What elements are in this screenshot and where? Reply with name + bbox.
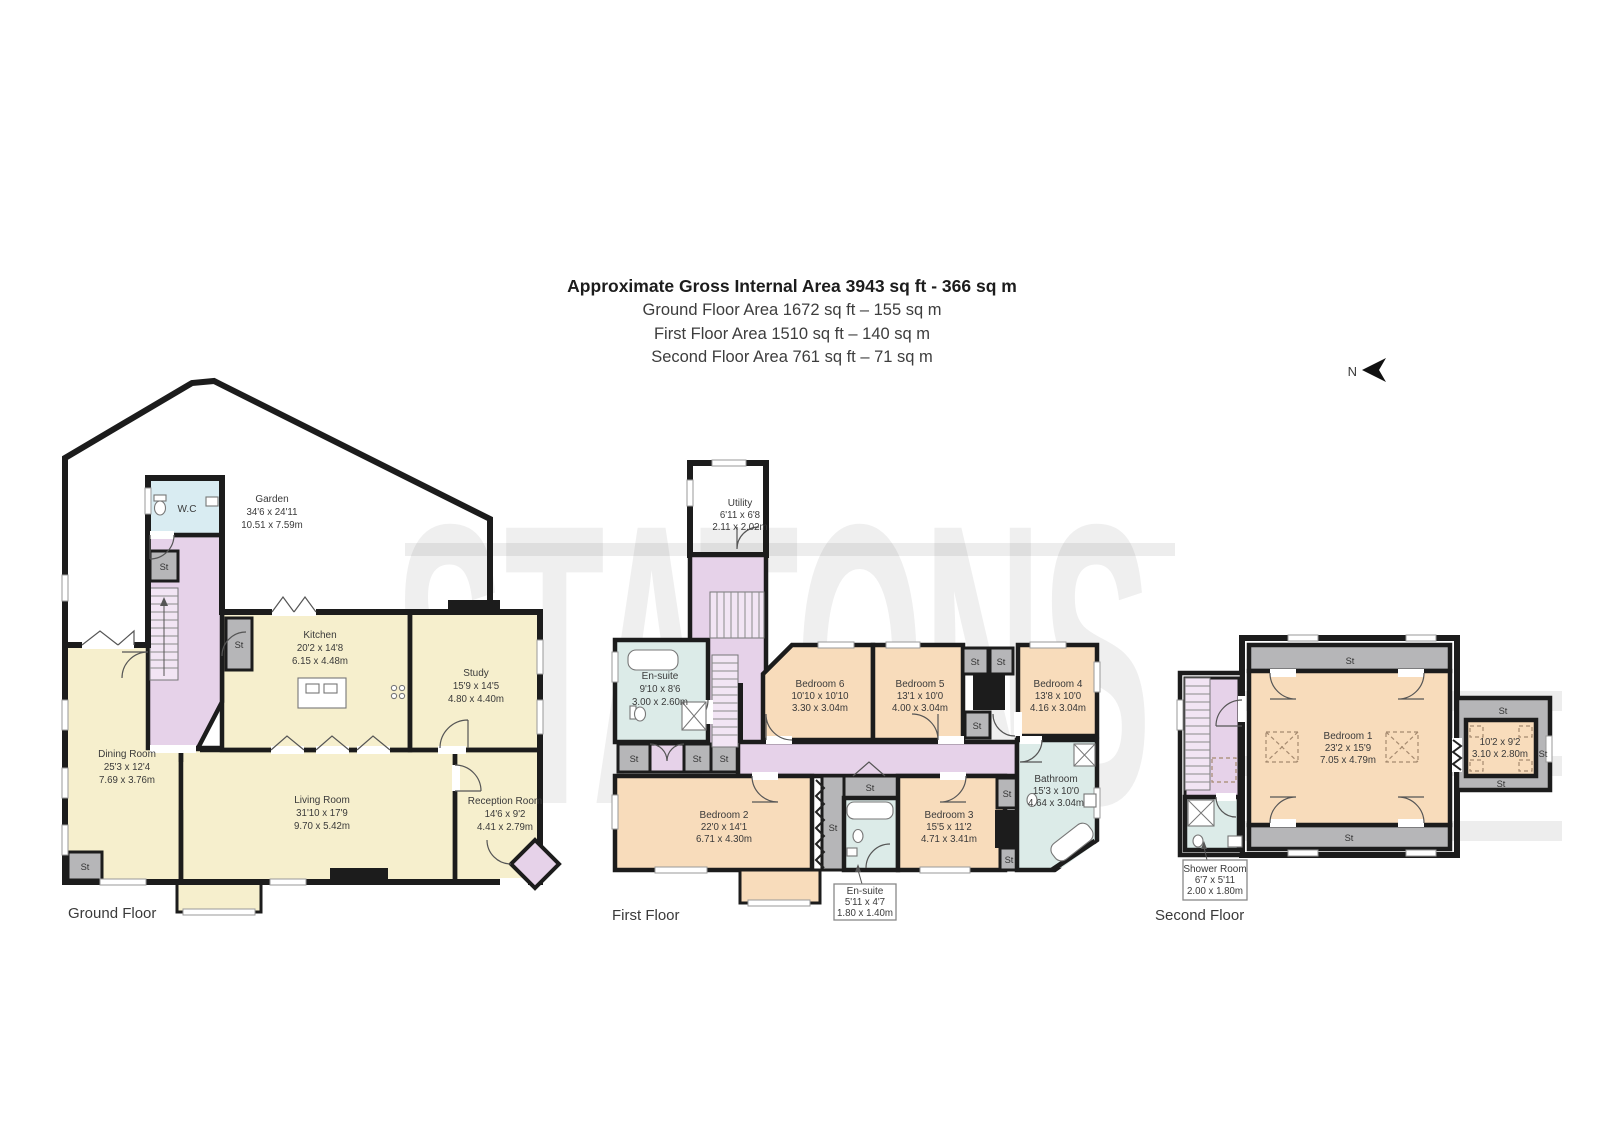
room-utility-m: 2.11 x 2.02m	[712, 522, 767, 533]
room-eaves-m: 3.10 x 2.80m	[1472, 749, 1528, 760]
room-reception-ft: 14'6 x 9'2	[485, 809, 526, 820]
room-bedroom5-name: Bedroom 5	[896, 679, 945, 690]
room-garden-ft: 34'6 x 24'11	[247, 507, 298, 518]
room-eaves	[1466, 720, 1536, 776]
room-bedroom6-ft: 10'10 x 10'10	[791, 691, 849, 702]
room-reception-name: Reception Room	[468, 796, 542, 807]
room-shower-name: Shower Room	[1183, 864, 1246, 875]
room-bedroom2-ft: 22'0 x 14'1	[701, 822, 747, 833]
room-bedroom5-m: 4.00 x 3.04m	[892, 703, 948, 714]
room-ensuite-name: En-suite	[642, 671, 679, 682]
ensuite-callout: En-suite 5'11 x 4'7 1.80 x 1.40m	[834, 864, 896, 920]
st-label: St	[235, 640, 244, 650]
room-study-name: Study	[463, 668, 489, 679]
room-bedroom1-name: Bedroom 1	[1324, 731, 1373, 742]
st-label: St	[720, 754, 729, 764]
second-floor-plan: Shower Room 6'7 x 5'11 2.00 x 1.80m Bedr…	[1177, 635, 1552, 900]
room-study-ft: 15'9 x 14'5	[453, 681, 499, 692]
room-bedroom3-ft: 15'5 x 11'2	[926, 822, 972, 833]
north-label: N	[1348, 364, 1357, 379]
st-label: St	[1003, 789, 1012, 799]
st-label: St	[1005, 855, 1014, 865]
st-label: St	[1497, 779, 1506, 789]
room-living-name: Living Room	[294, 795, 350, 806]
st-label: St	[693, 754, 702, 764]
room-bathroom-m: 4.64 x 3.04m	[1028, 798, 1084, 809]
room-kitchen-m: 6.15 x 4.48m	[292, 656, 348, 667]
st-label: St	[1539, 749, 1548, 759]
room-bathroom-ft: 15'3 x 10'0	[1033, 786, 1080, 797]
room-kitchen-ft: 20'2 x 14'8	[297, 643, 343, 654]
room-shower-m: 2.00 x 1.80m	[1187, 886, 1243, 897]
st-label: St	[1346, 656, 1355, 666]
room-living-m: 9.70 x 5.42m	[294, 821, 350, 832]
room-eaves-ft: 10'2 x 9'2	[1480, 737, 1521, 748]
room-bedroom4-name: Bedroom 4	[1034, 679, 1083, 690]
room-bedroom3-name: Bedroom 3	[925, 810, 974, 821]
room-utility	[690, 463, 766, 555]
st-label: St	[971, 657, 980, 667]
floorplans-svg: N	[0, 0, 1600, 1131]
corridor	[738, 742, 1017, 776]
st-label: St	[973, 721, 982, 731]
room-bedroom2-m: 6.71 x 4.30m	[696, 834, 752, 845]
room-bedroom3-m: 4.71 x 3.41m	[921, 834, 977, 845]
st-label: St	[1499, 706, 1508, 716]
room-bedroom2-name: Bedroom 2	[700, 810, 749, 821]
room-reception-m: 4.41 x 2.79m	[477, 822, 533, 833]
wall-shaft	[973, 674, 1005, 710]
room-bathroom-name: Bathroom	[1034, 774, 1077, 785]
first-floor-plan: En-suite 5'11 x 4'7 1.80 x 1.40m Utility…	[612, 460, 1101, 920]
st-label: St	[160, 562, 169, 572]
room-bedroom1-m: 7.05 x 4.79m	[1320, 755, 1376, 766]
fireplace	[330, 868, 388, 882]
room-dining-ft: 25'3 x 12'4	[104, 762, 151, 773]
wall-shaft	[995, 810, 1018, 848]
north-arrow-icon	[1362, 358, 1386, 382]
room-shower-ft: 6'7 x 5'11	[1195, 875, 1235, 886]
room-bedroom5-ft: 13'1 x 10'0	[897, 691, 944, 702]
stairs	[1185, 678, 1210, 790]
bay-window	[177, 882, 261, 912]
st-label: St	[1345, 833, 1354, 843]
st-label: St	[866, 783, 875, 793]
room-dining-name: Dining Room	[98, 749, 156, 760]
stairs	[150, 588, 178, 680]
st-label: St	[829, 823, 838, 833]
room-bedroom4-ft: 13'8 x 10'0	[1035, 691, 1082, 702]
room-garden-name: Garden	[255, 494, 288, 505]
room-kitchen-name: Kitchen	[303, 630, 336, 641]
bay-window	[740, 870, 820, 903]
room-bedroom6-name: Bedroom 6	[796, 679, 845, 690]
room-wc-name: W.C	[178, 504, 197, 515]
ground-floor-plan: Garden 34'6 x 24'11 10.51 x 7.59m W.C Ki…	[62, 381, 559, 915]
room-ensuite2-m: 1.80 x 1.40m	[837, 908, 893, 919]
st-label: St	[630, 754, 639, 764]
room-study-m: 4.80 x 4.40m	[448, 694, 504, 705]
room-utility-ft: 6'11 x 6'8	[720, 510, 760, 521]
north-arrow: N	[1348, 358, 1386, 382]
room-ensuite2-name: En-suite	[847, 886, 884, 897]
room-ensuite-ft: 9'10 x 8'6	[640, 684, 681, 695]
room-garden-m: 10.51 x 7.59m	[241, 520, 302, 531]
st-label: St	[997, 657, 1006, 667]
room-ensuite-m: 3.00 x 2.60m	[632, 697, 688, 708]
room-ensuite2-ft: 5'11 x 4'7	[845, 897, 885, 908]
st-label: St	[81, 862, 90, 872]
room-bedroom1-ft: 23'2 x 15'9	[1325, 743, 1371, 754]
room-bedroom4-m: 4.16 x 3.04m	[1030, 703, 1086, 714]
room-dining-m: 7.69 x 3.76m	[99, 775, 155, 786]
room-living-ft: 31'10 x 17'9	[296, 808, 348, 819]
room-utility-name: Utility	[728, 498, 752, 509]
room-bedroom6-m: 3.30 x 3.04m	[792, 703, 848, 714]
floorplan-page: STATONS Approximate Gross Internal Area …	[0, 0, 1600, 1131]
